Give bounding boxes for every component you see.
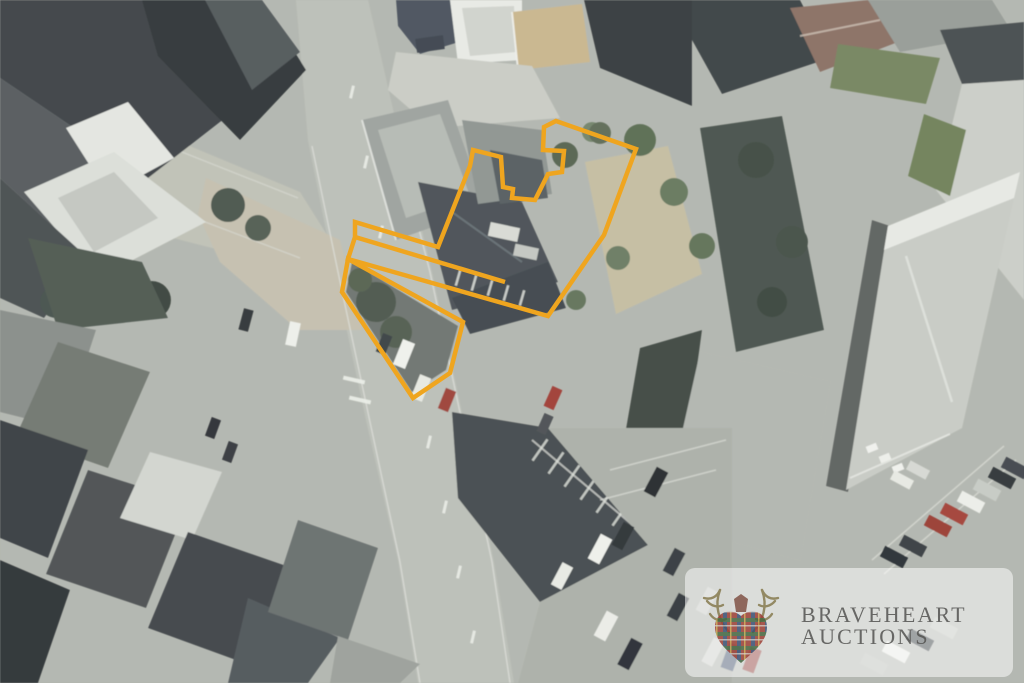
aerial-photo: BRAVEHEART AUCTIONS [0,0,1024,683]
watermark-brand: BRAVEHEART AUCTIONS [801,604,967,648]
braveheart-logo [691,572,791,672]
watermark-brand-line1: BRAVEHEART [801,604,967,626]
stag-head-icon [734,594,748,612]
watermark-panel: BRAVEHEART AUCTIONS [685,568,1013,677]
watermark-brand-line2: AUCTIONS [801,626,967,648]
tartan-heart-icon [715,612,767,663]
